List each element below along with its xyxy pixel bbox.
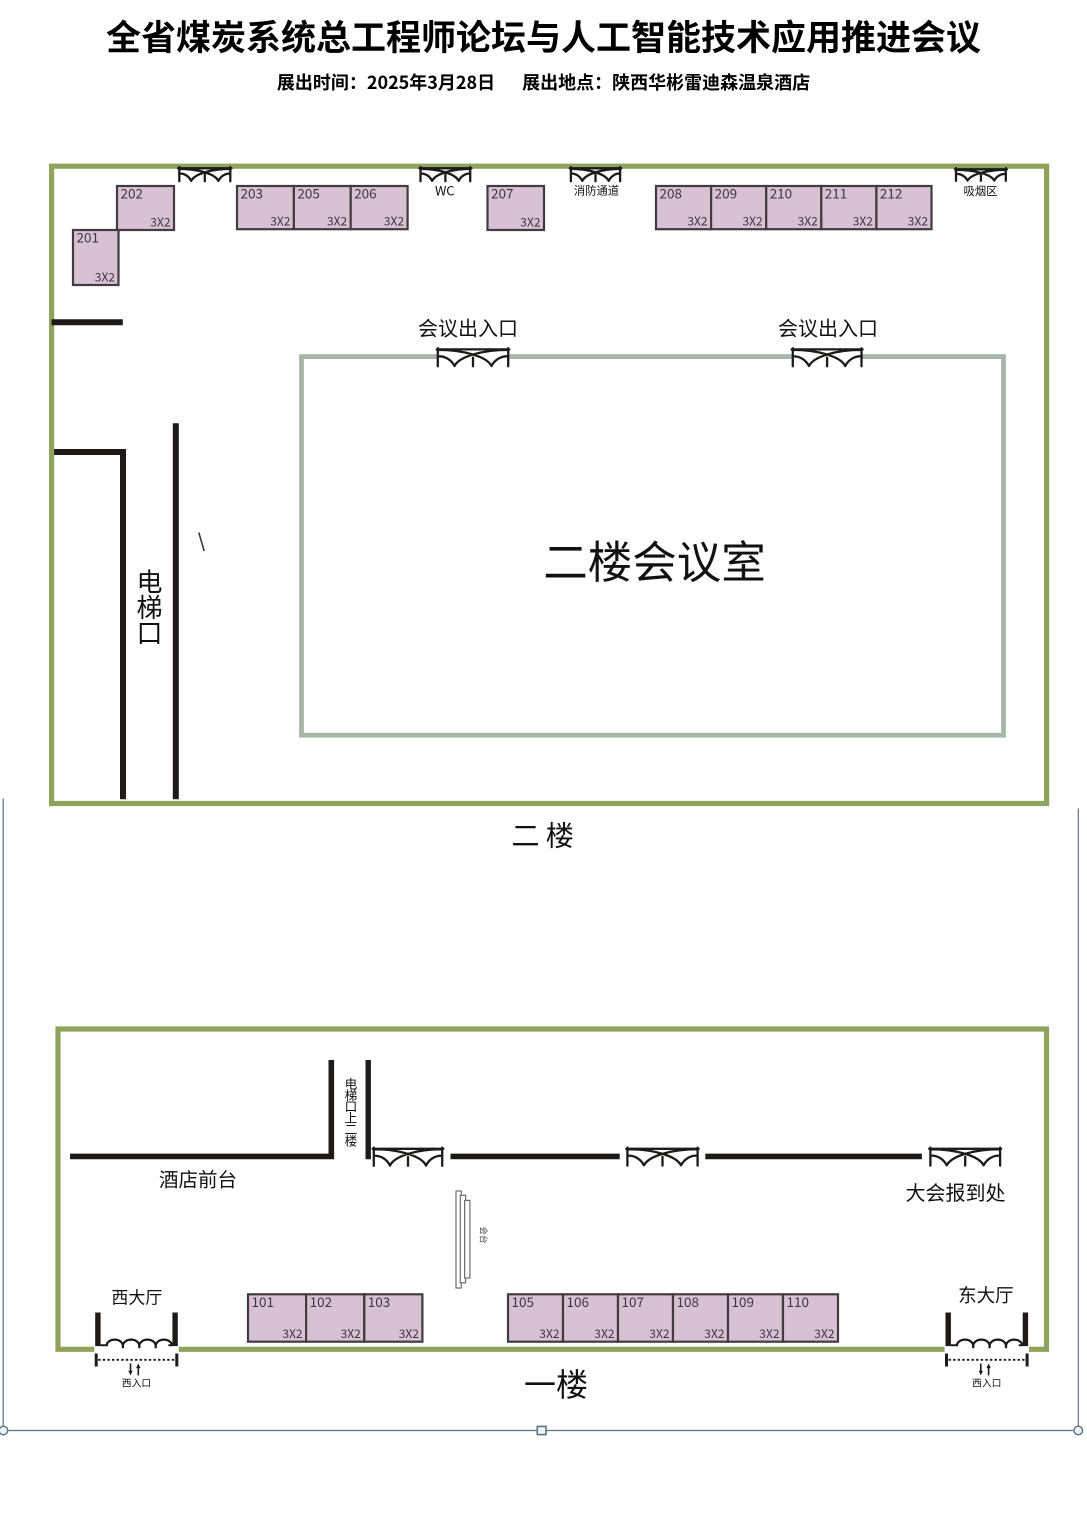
svg-text:109: 109	[732, 1291, 754, 1311]
svg-text:3X2: 3X2	[742, 213, 763, 230]
svg-text:3X2: 3X2	[687, 213, 708, 230]
svg-text:107: 107	[622, 1291, 644, 1311]
svg-text:105: 105	[512, 1291, 534, 1311]
svg-text:3X2: 3X2	[327, 213, 348, 230]
svg-text:酒店前台: 酒店前台	[159, 1164, 237, 1193]
svg-text:3X2: 3X2	[384, 213, 405, 230]
svg-text:3X2: 3X2	[95, 269, 116, 286]
svg-text:209: 209	[715, 183, 737, 203]
svg-text:吸烟区: 吸烟区	[964, 183, 998, 199]
svg-text:西入口: 西入口	[122, 1376, 151, 1390]
svg-text:东大厅: 东大厅	[958, 1282, 1014, 1308]
svg-text:3X2: 3X2	[594, 1325, 615, 1342]
svg-text:楼: 楼	[345, 1131, 358, 1150]
svg-text:207: 207	[491, 183, 513, 203]
svg-text:3X2: 3X2	[704, 1325, 725, 1342]
svg-text:201: 201	[77, 227, 99, 247]
svg-text:西大厅: 西大厅	[111, 1284, 162, 1309]
svg-text:消防通道: 消防通道	[574, 183, 619, 199]
svg-text:210: 210	[770, 183, 792, 203]
svg-text:3X2: 3X2	[759, 1325, 780, 1342]
svg-text:203: 203	[241, 183, 263, 203]
svg-text:211: 211	[825, 183, 847, 203]
svg-text:会议出入口: 会议出入口	[418, 313, 518, 342]
svg-text:3X2: 3X2	[853, 213, 874, 230]
svg-text:103: 103	[368, 1291, 390, 1311]
svg-text:3X2: 3X2	[341, 1325, 362, 1342]
svg-text:212: 212	[880, 183, 902, 203]
svg-text:101: 101	[252, 1291, 274, 1311]
svg-text:一楼: 一楼	[524, 1360, 588, 1406]
svg-text:3X2: 3X2	[520, 214, 541, 231]
svg-text:口: 口	[136, 614, 162, 651]
svg-text:3X2: 3X2	[150, 214, 171, 231]
svg-text:大会报到处: 大会报到处	[906, 1177, 1006, 1206]
svg-text:202: 202	[121, 183, 143, 203]
svg-text:106: 106	[567, 1291, 589, 1311]
svg-text:会台: 会台	[478, 1226, 490, 1243]
svg-text:3X2: 3X2	[649, 1325, 670, 1342]
svg-text:二楼会议室: 二楼会议室	[543, 526, 766, 591]
svg-text:108: 108	[677, 1291, 699, 1311]
svg-text:3X2: 3X2	[539, 1325, 560, 1342]
svg-text:西入口: 西入口	[972, 1376, 1001, 1390]
svg-text:3X2: 3X2	[798, 213, 819, 230]
svg-text:110: 110	[787, 1291, 809, 1311]
svg-text:208: 208	[660, 183, 682, 203]
svg-text:3X2: 3X2	[399, 1325, 420, 1342]
svg-text:102: 102	[310, 1291, 332, 1311]
svg-text:205: 205	[297, 183, 319, 203]
svg-text:3X2: 3X2	[270, 213, 291, 230]
svg-text:3X2: 3X2	[814, 1325, 835, 1342]
svg-text:3X2: 3X2	[282, 1325, 303, 1342]
svg-text:WC: WC	[435, 181, 455, 200]
svg-text:会议出入口: 会议出入口	[778, 313, 878, 342]
svg-text:二 楼: 二 楼	[512, 815, 574, 855]
svg-text:3X2: 3X2	[908, 213, 929, 230]
svg-text:206: 206	[354, 183, 376, 203]
